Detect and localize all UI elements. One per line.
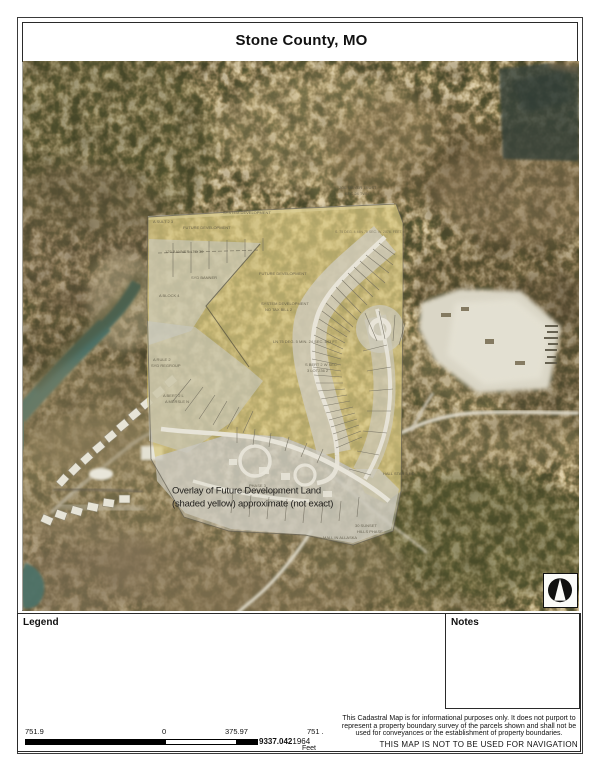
- svg-text:SYSTEM DEVELOPMENT: SYSTEM DEVELOPMENT: [223, 210, 271, 215]
- svg-text:3 LOT236 2: 3 LOT236 2: [307, 368, 329, 373]
- svg-text:(shaded yellow) approximate (: (shaded yellow) approximate (not exact): [172, 499, 333, 510]
- svg-text:S. 75 DEG. 4 MIN 75 SEC. W. 28: S. 75 DEG. 4 MIN 75 SEC. W. 2876. FEET: [335, 230, 403, 234]
- svg-text:30 SUNSET: 30 SUNSET: [355, 523, 377, 528]
- svg-text:SEC 24 TWN: SEC 24 TWN: [345, 191, 369, 196]
- svg-text:A MERSLE N: A MERSLE N: [165, 399, 189, 404]
- svg-text:NO TAX BILL 2: NO TAX BILL 2: [265, 307, 293, 312]
- svg-text:S BERT 2 W SEC: S BERT 2 W SEC: [305, 362, 337, 367]
- svg-text:125 BANNER LTD 30: 125 BANNER LTD 30: [165, 249, 204, 254]
- svg-text:A RULE 2: A RULE 2: [153, 357, 171, 362]
- svg-text:JOE MEYER TRUST: JOE MEYER TRUST: [339, 185, 377, 190]
- svg-text:SYSTEM DEVELOPMENT: SYSTEM DEVELOPMENT: [261, 301, 309, 306]
- svg-text:FUTURE DEVELOPMENT: FUTURE DEVELOPMENT: [183, 225, 231, 230]
- svg-text:Overlay of Future Development: Overlay of Future Development Land: [172, 486, 321, 497]
- svg-text:SYD BANNER: SYD BANNER: [191, 275, 217, 280]
- svg-text:A SULT 2 3: A SULT 2 3: [153, 219, 174, 224]
- svg-text:FUTURE DEVELOPMENT: FUTURE DEVELOPMENT: [259, 271, 307, 276]
- svg-text:HALL STAR 3 RD: HALL STAR 3 RD: [383, 471, 415, 476]
- svg-text:HILLS PHASE: HILLS PHASE: [357, 529, 383, 534]
- svg-text:MALL IN ALLASKA: MALL IN ALLASKA: [323, 535, 357, 540]
- svg-text:SYD REGROUP: SYD REGROUP: [151, 363, 181, 368]
- svg-text:A BERT 2 L: A BERT 2 L: [163, 393, 185, 398]
- svg-text:A BLOCK 4: A BLOCK 4: [159, 293, 180, 298]
- svg-text:LN 75 DEG. 5 MIN. 24 SEC. 843: LN 75 DEG. 5 MIN. 24 SEC. 843 FT: [273, 339, 338, 344]
